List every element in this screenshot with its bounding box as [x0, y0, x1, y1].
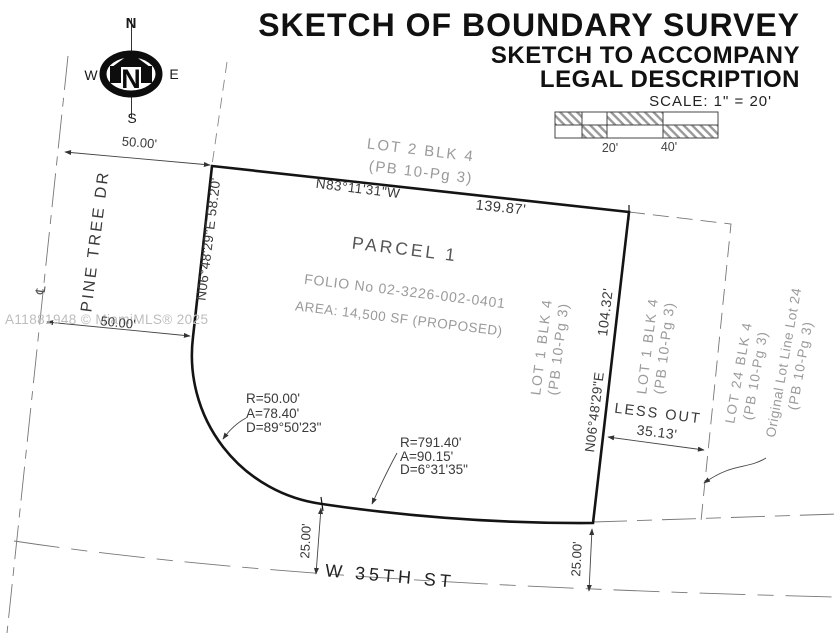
less-out-value: 35.13' — [636, 422, 678, 443]
north-arrow-compass: N N S W E — [84, 15, 178, 126]
lot1-west-label-group: LOT 1 BLK 4 (PB 10-Pg 3) — [527, 298, 572, 398]
curve2-delta: D=6°31'35" — [400, 462, 468, 477]
scale-bar-segment — [555, 125, 582, 138]
scale-bar-segment — [663, 112, 718, 125]
compass-south-label: S — [127, 110, 136, 126]
scale-bar-segment — [607, 125, 663, 138]
scale-label: SCALE: 1" = 20' — [649, 93, 772, 110]
scale-bar-segment — [607, 112, 663, 125]
dim-line-25-left — [316, 508, 321, 574]
street-label-w-35th-st: W 35TH ST — [324, 560, 455, 591]
page-subtitle-2: LEGAL DESCRIPTION — [540, 66, 800, 93]
dim-50-bottom: 50.00' — [100, 313, 136, 332]
curve1-radius: R=50.00' — [246, 391, 300, 406]
scale-bar-segment — [663, 125, 718, 138]
dim-25-right: 25.00' — [568, 541, 585, 577]
parcel-name: PARCEL 1 — [351, 233, 459, 266]
compass-west-label: W — [84, 67, 98, 83]
dim-50-top: 50.00' — [121, 134, 157, 152]
survey-sketch-page: SKETCH OF BOUNDARY SURVEY SKETCH TO ACCO… — [0, 0, 840, 639]
curve1-delta: D=89°50'23" — [246, 420, 322, 435]
lot1-east-label-group: LOT 1 BLK 4 (PB 10-Pg 3) — [633, 297, 678, 397]
compass-wing-left — [110, 66, 121, 83]
curve1-arc: A=78.40' — [246, 406, 299, 421]
dim-line-50-top — [65, 152, 210, 165]
west-line-extension-dashed — [212, 62, 227, 165]
original-lot-line-label-group: Original Lot Line Lot 24 (PB 10-Pg 3) — [763, 287, 821, 442]
scale-tick-40: 40' — [661, 140, 677, 154]
compass-hub-letter: N — [121, 64, 141, 94]
page-subtitle-1: SKETCH TO ACCOMPANY — [491, 42, 800, 69]
east-boundary-distance: 104.32' — [594, 287, 616, 337]
pine-tree-centerline — [7, 56, 68, 633]
lot24-label-group: LOT 24 BLK 4 (PB 10-Pg 3) — [722, 320, 771, 427]
scale-bar-segment — [555, 112, 582, 125]
survey-drawing: SKETCH OF BOUNDARY SURVEY SKETCH TO ACCO… — [0, 0, 840, 639]
dim-25-left: 25.00' — [297, 523, 314, 559]
page-title: SKETCH OF BOUNDARY SURVEY — [258, 7, 800, 43]
centerline-symbol: ℄ — [32, 284, 48, 296]
dim-line-25-right — [589, 529, 592, 591]
leader-original-lot-line — [704, 458, 766, 483]
compass-north-label: N — [126, 15, 137, 32]
north-boundary-bearing: N83°11'31"W — [315, 176, 401, 201]
street-label-pine-tree-dr: PINE TREE DR — [78, 169, 112, 313]
curve-data-2: R=791.40' A=90.15' D=6°31'35" — [400, 435, 468, 477]
scale-bar: 20' 40' — [555, 112, 718, 155]
curve-data-1: R=50.00' A=78.40' D=89°50'23" — [246, 391, 322, 435]
compass-east-label: E — [169, 66, 178, 82]
scale-bar-segment — [582, 112, 607, 125]
scale-tick-20: 20' — [602, 141, 618, 155]
scale-bar-segment — [582, 125, 607, 138]
south-line-extension-dashed — [593, 514, 838, 522]
curve2-radius: R=791.40' — [400, 435, 462, 450]
leader-curve1 — [223, 418, 246, 439]
leader-curve2 — [372, 453, 397, 504]
compass-wing-right — [141, 66, 152, 83]
west-boundary-bearing-distance: N06°48'29"E 58.20' — [194, 177, 224, 302]
